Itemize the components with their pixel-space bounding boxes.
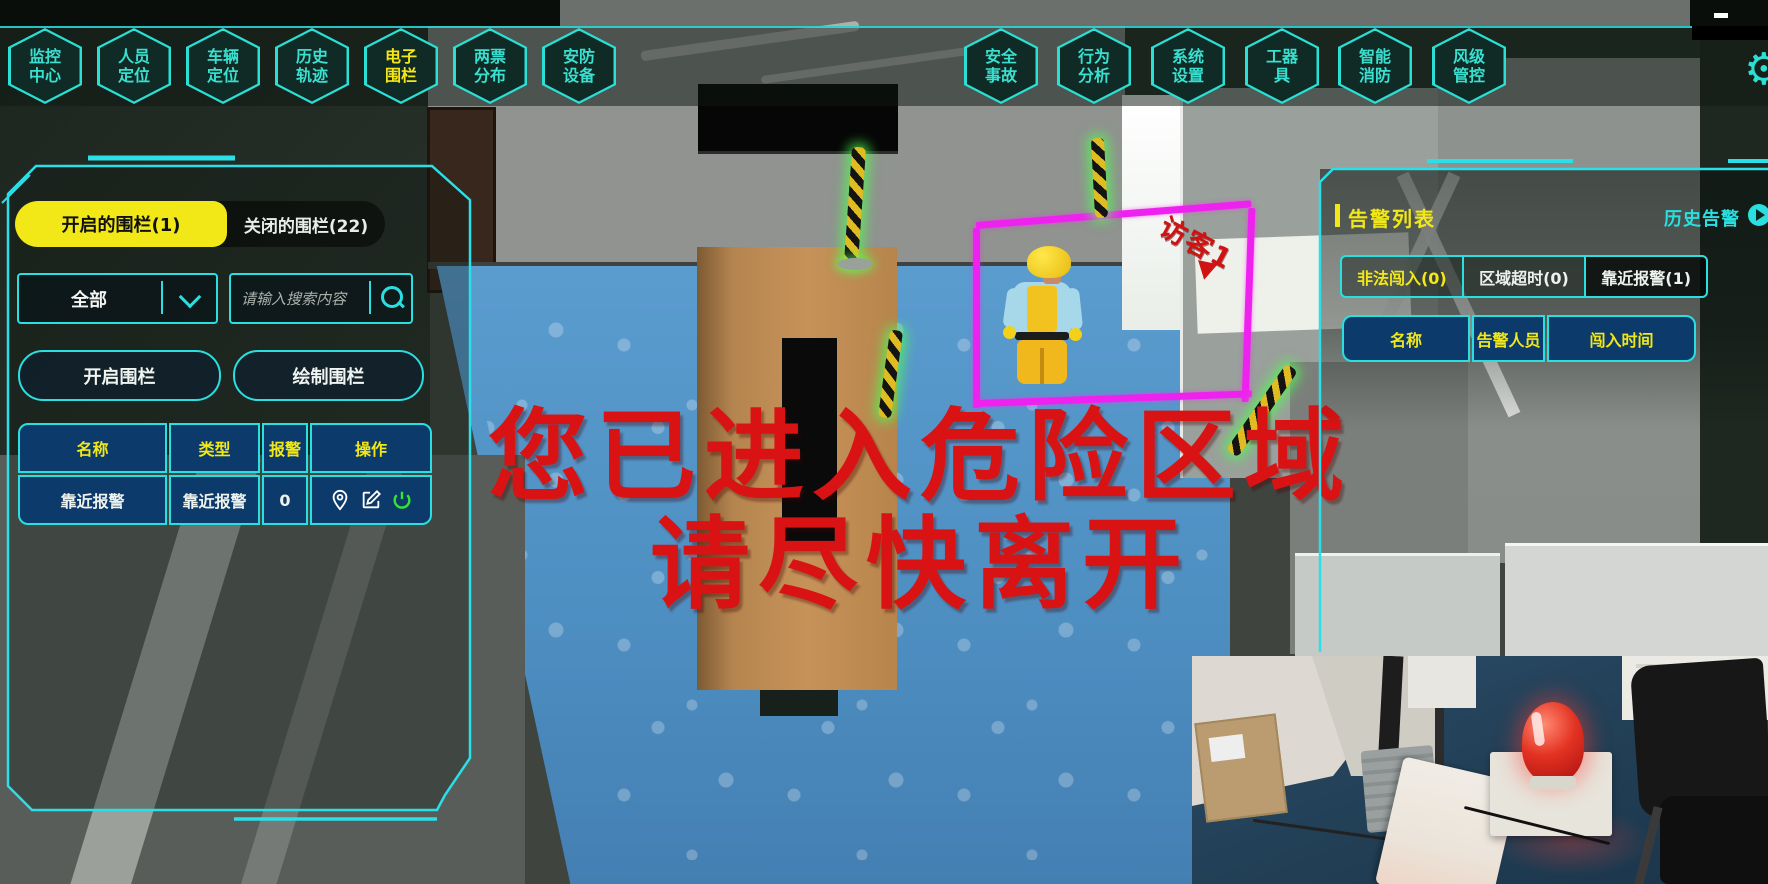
play-icon[interactable]	[1748, 204, 1768, 226]
nav-safety-accident[interactable]: 安全事故	[964, 28, 1038, 104]
nav-behavior-analysis[interactable]: 行为分析	[1057, 28, 1131, 104]
edit-icon[interactable]	[360, 489, 382, 511]
filter-dropdown-value: 全部	[19, 275, 159, 322]
alarm-tabs: 非法闯入(0) 区域超时(0) 靠近报警(1)	[1340, 255, 1708, 298]
worker-helmet	[1027, 246, 1071, 278]
nav-personnel-location[interactable]: 人员定位	[97, 28, 171, 104]
nav-history-track[interactable]: 历史轨迹	[275, 28, 349, 104]
warning-line-1: 您已进入危险区域	[480, 403, 1360, 511]
table-row-name: 靠近报警	[18, 475, 167, 525]
dropdown-divider	[161, 281, 163, 314]
col-header-type: 类型	[169, 423, 260, 473]
worker-vest	[1027, 286, 1057, 332]
table-row-alarm-count: 0	[262, 475, 308, 525]
webcam-cardboard-box	[1194, 713, 1288, 822]
nav-security-devices[interactable]: 安防设备	[542, 28, 616, 104]
worker-glove	[1069, 328, 1082, 341]
ceiling-dark-left	[0, 0, 560, 26]
table-row-type: 靠近报警	[169, 475, 260, 525]
alarm-col-name: 名称	[1342, 315, 1470, 362]
warning-post-base	[838, 258, 872, 270]
open-fence-button[interactable]: 开启围栏	[18, 350, 221, 401]
tab-illegal-intrusion[interactable]: 非法闯入(0)	[1340, 255, 1463, 298]
nav-tools[interactable]: 工器具	[1245, 28, 1319, 104]
tab-open-fences[interactable]: 开启的围栏(1)	[15, 201, 227, 247]
webcam-box-label	[1209, 734, 1246, 762]
nav-wind-control[interactable]: 风级管控	[1432, 28, 1506, 104]
filter-dropdown[interactable]: 全部	[17, 273, 218, 324]
webcam-chair-back	[1630, 658, 1768, 819]
cabinet-low-2	[1505, 543, 1768, 662]
nav-system-settings[interactable]: 系统设置	[1151, 28, 1225, 104]
webcam-sill	[1408, 656, 1476, 708]
gear-icon[interactable]: ⚙	[1744, 46, 1768, 94]
worker-avatar	[985, 240, 1085, 385]
app-window: 访客1 您已进入危险区域 请	[0, 0, 1768, 884]
search-placeholder: 请输入搜索内容	[241, 275, 346, 322]
worker-legs-split	[1040, 348, 1044, 384]
search-icon[interactable]	[381, 286, 403, 308]
window-control-bar	[1692, 26, 1768, 40]
nav-two-ticket[interactable]: 两票分布	[453, 28, 527, 104]
alarm-list-title: 告警列表	[1348, 203, 1436, 232]
danger-warning-text: 您已进入危险区域 请尽快离开	[480, 403, 1360, 619]
search-divider	[369, 281, 371, 314]
draw-fence-button[interactable]: 绘制围栏	[233, 350, 424, 401]
webcam-beacon-base	[1530, 776, 1576, 790]
fence-table: 名称 类型 报警 操作 靠近报警 靠近报警 0	[18, 423, 430, 525]
tab-proximity-alarm[interactable]: 靠近报警(1)	[1585, 255, 1708, 298]
location-icon[interactable]	[329, 489, 351, 511]
search-input[interactable]: 请输入搜索内容	[229, 273, 413, 324]
alarm-col-person: 告警人员	[1472, 315, 1545, 362]
tab-closed-fences[interactable]: 关闭的围栏(22)	[227, 201, 385, 247]
person-pin-icon	[1194, 260, 1217, 282]
webcam-chair-seat	[1660, 796, 1768, 884]
alarm-col-time: 闯入时间	[1547, 315, 1696, 362]
table-shadow	[760, 690, 838, 716]
power-icon[interactable]	[391, 489, 413, 511]
col-header-name: 名称	[18, 423, 167, 473]
nav-monitor-center[interactable]: 监控中心	[8, 28, 82, 104]
warning-line-2: 请尽快离开	[480, 511, 1360, 619]
ceiling-dark-right	[1690, 0, 1768, 26]
nav-vehicle-location[interactable]: 车辆定位	[186, 28, 260, 104]
minimize-icon[interactable]	[1714, 13, 1728, 18]
alarm-title-marker	[1335, 204, 1340, 227]
col-header-actions: 操作	[310, 423, 432, 473]
alarm-table: 名称 告警人员 闯入时间	[1342, 315, 1700, 362]
ceiling-gray	[560, 0, 1690, 26]
nav-electronic-fence[interactable]: 电子围栏	[364, 28, 438, 104]
worker-glove	[1003, 326, 1016, 339]
nav-smart-fire[interactable]: 智能消防	[1338, 28, 1412, 104]
webcam-inset	[1192, 656, 1768, 884]
chevron-down-icon	[179, 286, 202, 309]
worker-belt	[1015, 332, 1069, 340]
history-alarms-link[interactable]: 历史告警	[1664, 205, 1740, 231]
fence-line-left	[973, 228, 980, 408]
col-header-alarm: 报警	[262, 423, 308, 473]
table-row-actions	[310, 475, 432, 525]
tab-area-timeout[interactable]: 区域超时(0)	[1463, 255, 1586, 298]
